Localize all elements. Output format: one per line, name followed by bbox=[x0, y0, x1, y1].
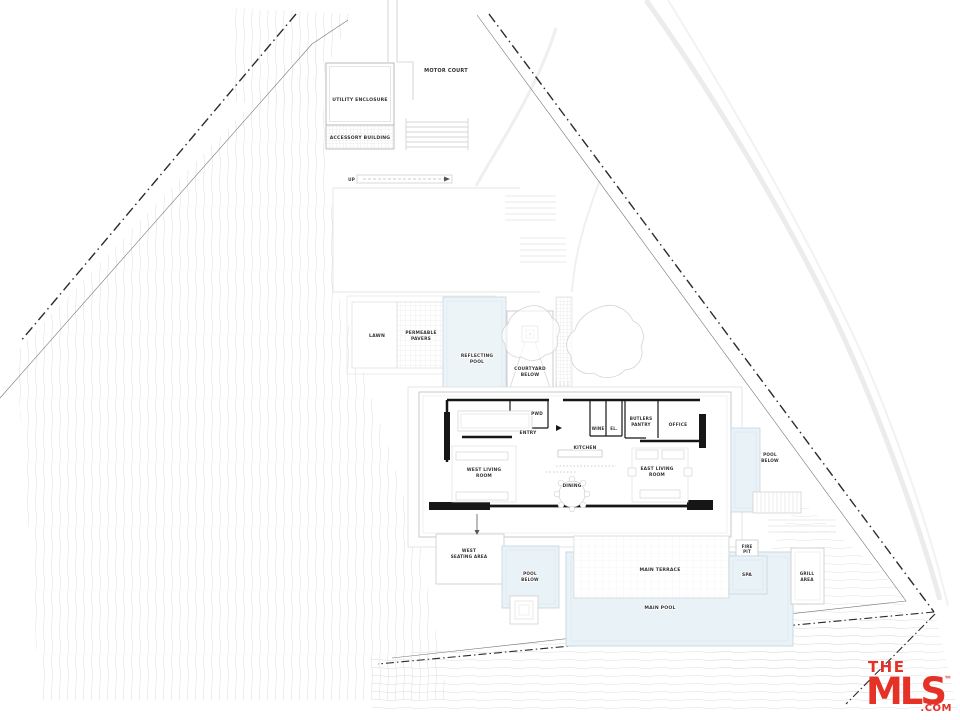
utility-enclosure-outline bbox=[326, 63, 394, 125]
reflecting-pool-water bbox=[443, 297, 506, 393]
label-west-living-room: WEST LIVING bbox=[467, 467, 502, 473]
label-pool-below-west: POOL bbox=[523, 571, 537, 576]
label-east-living-room-2: ROOM bbox=[649, 472, 665, 478]
label-courtyard-below-2: BELOW bbox=[521, 372, 540, 378]
label-motor-court: MOTOR COURT bbox=[424, 68, 468, 74]
label-utility-enclosure: UTILITY ENCLOSURE bbox=[332, 97, 387, 103]
label-dining: DINING bbox=[562, 483, 581, 489]
site-plan-page: MOTOR COURT UTILITY ENCLOSURE ACCESSORY … bbox=[0, 0, 960, 720]
label-east-living-room: EAST LIVING bbox=[640, 466, 673, 472]
label-wine: WINE bbox=[592, 426, 605, 431]
label-fire-pit-2: PIT bbox=[743, 549, 751, 554]
west-seating-outline bbox=[436, 534, 504, 584]
hillside-steps bbox=[505, 196, 566, 262]
mls-logo-tm-icon: ™ bbox=[944, 676, 952, 684]
label-pool-below-west-2: BELOW bbox=[521, 577, 539, 582]
label-grill-area-2: AREA bbox=[800, 577, 814, 582]
tree-canopy-icon bbox=[567, 305, 644, 377]
site-plan-drawing: MOTOR COURT UTILITY ENCLOSURE ACCESSORY … bbox=[0, 0, 960, 720]
label-butlers-pantry: BUTLERS bbox=[630, 416, 653, 421]
label-permeable-pavers: PERMEABLE bbox=[405, 330, 436, 336]
east-stairs bbox=[753, 492, 801, 513]
main-house bbox=[408, 387, 742, 547]
label-pool-below-east: POOL bbox=[763, 452, 777, 457]
motor-court-steps bbox=[406, 118, 468, 150]
water-feature bbox=[510, 596, 538, 624]
label-west-seating-area-2: SEATING AREA bbox=[451, 554, 488, 559]
label-main-pool: MAIN POOL bbox=[644, 605, 675, 611]
mls-watermark: THE MLS ™ .COM bbox=[866, 660, 952, 714]
label-butlers-pantry-2: PANTRY bbox=[631, 422, 651, 427]
label-pwd: PWD bbox=[531, 411, 543, 416]
label-main-terrace: MAIN TERRACE bbox=[639, 567, 680, 573]
grill-area-outline bbox=[791, 548, 824, 604]
label-accessory-building: ACCESSORY BUILDING bbox=[330, 135, 391, 141]
label-pool-below-east-2: BELOW bbox=[761, 458, 779, 463]
label-reflecting-pool: REFLECTING bbox=[461, 353, 494, 359]
label-permeable-pavers-2: PAVERS bbox=[411, 336, 431, 342]
label-west-living-room-2: ROOM bbox=[476, 473, 492, 479]
label-kitchen: KITCHEN bbox=[573, 445, 596, 451]
label-west-seating-area: WEST bbox=[462, 548, 476, 553]
label-grill-area: GRILL bbox=[800, 571, 815, 576]
label-office: OFFICE bbox=[669, 422, 688, 428]
label-reflecting-pool-2: POOL bbox=[470, 359, 484, 365]
label-entry: ENTRY bbox=[520, 430, 538, 436]
label-lawn: LAWN bbox=[369, 333, 385, 339]
label-up: UP bbox=[348, 177, 355, 182]
label-courtyard-below: COURTYARD bbox=[514, 366, 546, 372]
label-spa: SPA bbox=[742, 572, 752, 578]
label-el: EL. bbox=[610, 426, 618, 431]
